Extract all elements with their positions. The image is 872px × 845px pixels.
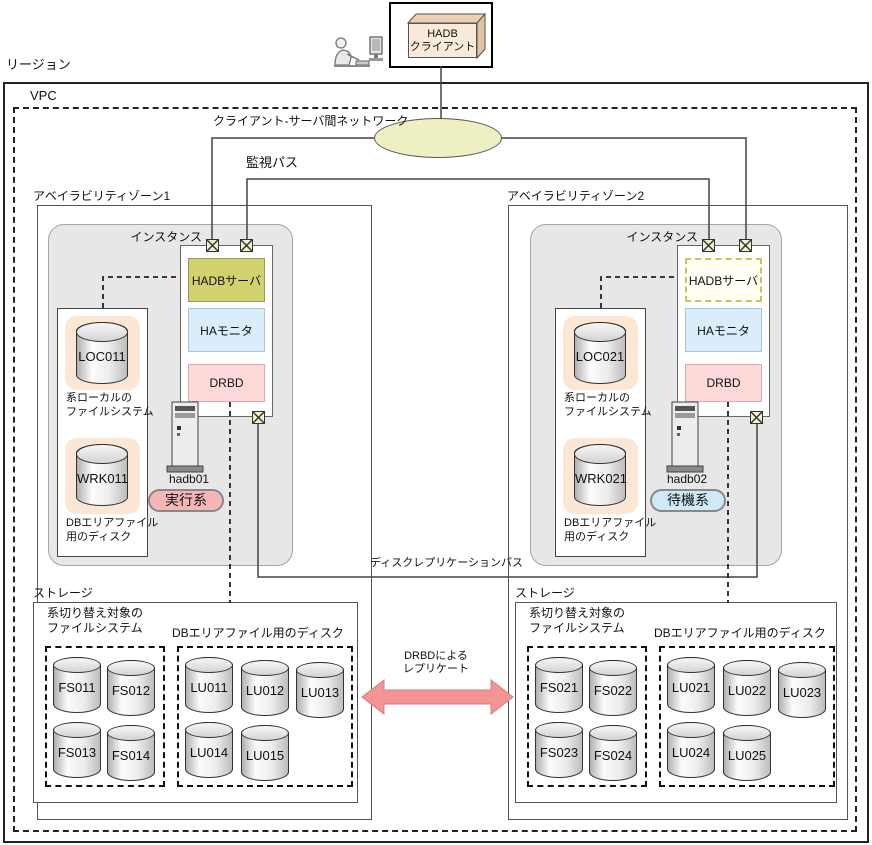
ha-monitor-label-az1: HAモニタ: [200, 322, 253, 339]
instance-label-az2: インスタンス: [626, 230, 698, 244]
disk-cylinder-fs011: FS011: [53, 657, 101, 713]
disk-cylinder-loc021: LOC021: [574, 322, 626, 384]
disk-cylinder-lu014: LU014: [185, 722, 233, 778]
instance-label-az1: インスタンス: [130, 230, 202, 244]
disk-cylinder-loc011: LOC011: [76, 322, 128, 384]
local-fs-caption-az2-line2: ファイルシステム: [564, 406, 652, 419]
drbd-box-az2: DRBD: [685, 364, 762, 402]
disk-label: LU024: [668, 745, 714, 760]
drbd-label-az2: DRBD: [706, 376, 740, 390]
disk-cylinder-fs022: FS022: [589, 660, 637, 716]
disk-label: FS011: [54, 680, 100, 695]
disk-label: WRK011: [77, 471, 127, 486]
vpc-label: VPC: [30, 88, 57, 103]
disk-cylinder-fs023: FS023: [535, 722, 583, 778]
hadb-server-box-az2: HADBサーバ: [685, 258, 762, 302]
server-tower-icon: [665, 400, 705, 474]
replication-label-line1: DRBDによる: [381, 650, 491, 663]
role-badge-active: 実行系: [148, 489, 224, 512]
disk-label: LU025: [724, 748, 770, 763]
disk-cylinder-lu025: LU025: [723, 725, 771, 781]
network-interface-icon: [739, 239, 752, 252]
host-label-az1: hadb01: [169, 472, 209, 486]
disk-cylinder-wrk011: WRK011: [76, 444, 128, 506]
ha-monitor-box-az1: HAモニタ: [188, 308, 265, 352]
replication-arrow: [361, 672, 514, 722]
disk-cylinder-wrk021: WRK021: [574, 444, 626, 506]
disk-cylinder-lu012: LU012: [241, 660, 289, 716]
network-interface-icon: [702, 239, 715, 252]
fs-group-caption-az2-line1: 系切り替え対象の: [529, 606, 625, 620]
fs-group-caption-az1-line1: 系切り替え対象の: [47, 606, 143, 620]
disk-label: LU014: [186, 745, 232, 760]
db-area-caption-az1-line2: 用のディスク: [66, 531, 131, 544]
hadb-client-box: HADB クライアント: [408, 23, 477, 58]
diagram-canvas: リージョン VPC HADB クライアント クライアント-サーバ間ネットワーク …: [0, 0, 872, 845]
local-fs-caption-az2-line1: 系ローカルの: [564, 392, 630, 405]
monitor-path-label: 監視パス: [246, 155, 298, 170]
disk-label: WRK021: [575, 471, 625, 486]
lu-group-caption-az1: DBエリアファイル用のディスク: [172, 626, 344, 640]
disk-cylinder-fs014: FS014: [107, 725, 155, 781]
db-area-caption-az2-line2: 用のディスク: [564, 531, 629, 544]
server-tower-icon: [165, 400, 205, 474]
disk-label: FS014: [108, 748, 154, 763]
disk-label: LU012: [242, 683, 288, 698]
network-interface-icon: [206, 239, 219, 252]
hadb-client-label-line1: HADB: [427, 28, 458, 41]
drbd-label-az1: DRBD: [209, 376, 243, 390]
disk-cylinder-lu024: LU024: [667, 722, 715, 778]
ha-monitor-box-az2: HAモニタ: [685, 308, 762, 352]
fs-group-caption-az2-line2: ファイルシステム: [529, 621, 625, 635]
disk-label: LOC011: [77, 349, 127, 364]
disk-label: FS012: [108, 683, 154, 698]
ha-monitor-label-az2: HAモニタ: [697, 322, 750, 339]
disk-replication-path-label: ディスクレプリケーションパス: [370, 557, 523, 570]
host-label-az2: hadb02: [667, 472, 707, 486]
local-fs-caption-az1-line2: ファイルシステム: [66, 406, 154, 419]
db-area-caption-az1-line1: DBエリアファイル: [66, 517, 158, 530]
disk-cylinder-lu015: LU015: [241, 725, 289, 781]
db-area-caption-az2-line1: DBエリアファイル: [564, 517, 656, 530]
disk-label: FS022: [590, 683, 636, 698]
disk-cylinder-lu013: LU013: [296, 662, 344, 718]
user-at-computer-icon: [332, 36, 386, 68]
disk-cylinder-lu011: LU011: [185, 657, 233, 713]
fs-group-caption-az1-line2: ファイルシステム: [47, 621, 143, 635]
hadb-server-label-az2: HADBサーバ: [689, 272, 758, 289]
network-interface-icon: [750, 411, 763, 424]
network-interface-icon: [240, 239, 253, 252]
network-interface-icon: [252, 411, 265, 424]
local-fs-caption-az1-line1: 系ローカルの: [66, 392, 132, 405]
disk-cylinder-lu023: LU023: [778, 662, 826, 718]
hadb-client-label-line2: クライアント: [410, 41, 476, 54]
disk-cylinder-fs021: FS021: [535, 657, 583, 713]
disk-label: LU023: [779, 685, 825, 700]
disk-cylinder-fs024: FS024: [589, 725, 637, 781]
disk-label: LU022: [724, 683, 770, 698]
role-badge-standby: 待機系: [650, 489, 726, 512]
region-label: リージョン: [6, 57, 71, 72]
storage-label-az2: ストレージ: [515, 586, 575, 600]
storage-label-az1: ストレージ: [33, 586, 93, 600]
disk-label: LU021: [668, 680, 714, 695]
drbd-box-az1: DRBD: [188, 364, 265, 402]
disk-label: LOC021: [575, 349, 625, 364]
hadb-server-box-az1: HADBサーバ: [188, 258, 265, 302]
disk-label: FS013: [54, 745, 100, 760]
disk-cylinder-lu022: LU022: [723, 660, 771, 716]
disk-label: FS023: [536, 745, 582, 760]
lu-group-caption-az2: DBエリアファイル用のディスク: [654, 626, 826, 640]
disk-cylinder-lu021: LU021: [667, 657, 715, 713]
disk-cylinder-fs012: FS012: [107, 660, 155, 716]
availability-zone-2-label: アベイラビリティゾーン2: [507, 189, 644, 203]
availability-zone-1-label: アベイラビリティゾーン1: [33, 189, 170, 203]
disk-label: FS024: [590, 748, 636, 763]
disk-label: FS021: [536, 680, 582, 695]
disk-label: LU011: [186, 680, 232, 695]
disk-cylinder-fs013: FS013: [53, 722, 101, 778]
disk-label: LU015: [242, 748, 288, 763]
hadb-server-label-az1: HADBサーバ: [192, 272, 261, 289]
client-server-network-label: クライアント-サーバ間ネットワーク: [213, 114, 408, 128]
disk-label: LU013: [297, 685, 343, 700]
